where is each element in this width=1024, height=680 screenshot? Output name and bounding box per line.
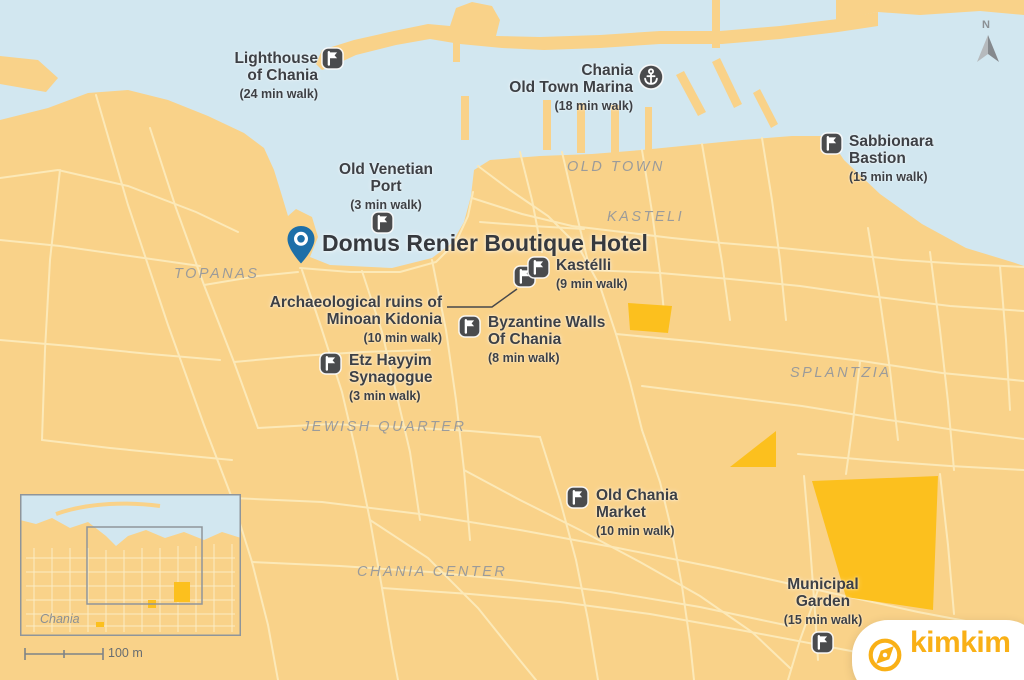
poi-synagogue: Etz Hayyim Synagogue (3 min walk) xyxy=(349,352,459,403)
scale-label: 100 m xyxy=(108,646,143,660)
poi-kastelli: Kastélli (9 min walk) xyxy=(556,257,666,291)
flag-icon[interactable] xyxy=(527,256,550,279)
hotel-name: Domus Renier Boutique Hotel xyxy=(322,230,648,257)
region-jewish-quarter: JEWISH QUARTER xyxy=(302,419,466,435)
chania-map: Chania 100 m N OLD TOWN KASTELI TOPANAS … xyxy=(0,0,1024,680)
poi-walk-time: (9 min walk) xyxy=(556,277,666,291)
poi-walk-time: (3 min walk) xyxy=(349,389,459,403)
flag-icon[interactable] xyxy=(319,352,342,375)
flag-icon[interactable] xyxy=(566,486,589,509)
north-label: N xyxy=(982,19,990,31)
poi-marina: Chania Old Town Marina (18 min walk) xyxy=(495,62,633,113)
poi-name: Chania Old Town Marina xyxy=(495,62,633,96)
poi-lighthouse: Lighthouse of Chania (24 min walk) xyxy=(200,50,318,101)
poi-walk-time: (18 min walk) xyxy=(495,99,633,113)
inset-place-label: Chania xyxy=(40,612,80,626)
hotel-pin-icon[interactable] xyxy=(286,225,316,265)
region-kasteli: KASTELI xyxy=(607,209,684,225)
poi-name: Lighthouse of Chania xyxy=(200,50,318,84)
poi-old-market: Old Chania Market (10 min walk) xyxy=(596,487,706,538)
poi-sabbionara: Sabbionara Bastion (15 min walk) xyxy=(849,133,969,184)
poi-venetian-port: Old Venetian Port (3 min walk) xyxy=(330,161,442,212)
poi-minoan-ruins: Archaeological ruins of Minoan Kidonia (… xyxy=(237,294,442,345)
poi-name: Kastélli xyxy=(556,257,666,274)
flag-icon[interactable] xyxy=(820,132,843,155)
poi-walk-time: (10 min walk) xyxy=(237,331,442,345)
region-old-town: OLD TOWN xyxy=(567,159,665,175)
poi-name: Old Chania Market xyxy=(596,487,706,521)
region-topanas: TOPANAS xyxy=(174,266,259,282)
flag-icon[interactable] xyxy=(321,47,344,70)
poi-name: Sabbionara Bastion xyxy=(849,133,969,167)
poi-name: Etz Hayyim Synagogue xyxy=(349,352,459,386)
kimkim-logo[interactable]: kimkim xyxy=(852,620,1024,680)
poi-byzantine-walls: Byzantine Walls Of Chania (8 min walk) xyxy=(488,314,618,365)
flag-icon[interactable] xyxy=(458,315,481,338)
region-splantzia: SPLANTZIA xyxy=(790,365,891,381)
logo-wordmark: kimkim xyxy=(910,626,1010,660)
poi-name: Municipal Garden xyxy=(767,576,879,610)
north-arrow-icon xyxy=(973,32,1003,66)
poi-name: Old Venetian Port xyxy=(330,161,442,195)
poi-walk-time: (15 min walk) xyxy=(849,170,969,184)
poi-name: Archaeological ruins of Minoan Kidonia xyxy=(237,294,442,328)
flag-icon[interactable] xyxy=(811,631,834,654)
poi-name: Byzantine Walls Of Chania xyxy=(488,314,618,348)
region-chania-center: CHANIA CENTER xyxy=(357,564,507,580)
poi-municipal-garden: Municipal Garden (15 min walk) xyxy=(767,576,879,627)
poi-walk-time: (24 min walk) xyxy=(200,87,318,101)
poi-walk-time: (8 min walk) xyxy=(488,351,618,365)
compass-icon xyxy=(868,638,902,672)
anchor-icon[interactable] xyxy=(638,64,664,90)
poi-walk-time: (10 min walk) xyxy=(596,524,706,538)
poi-walk-time: (3 min walk) xyxy=(330,198,442,212)
flag-icon[interactable] xyxy=(371,211,394,234)
poi-walk-time: (15 min walk) xyxy=(767,613,879,627)
